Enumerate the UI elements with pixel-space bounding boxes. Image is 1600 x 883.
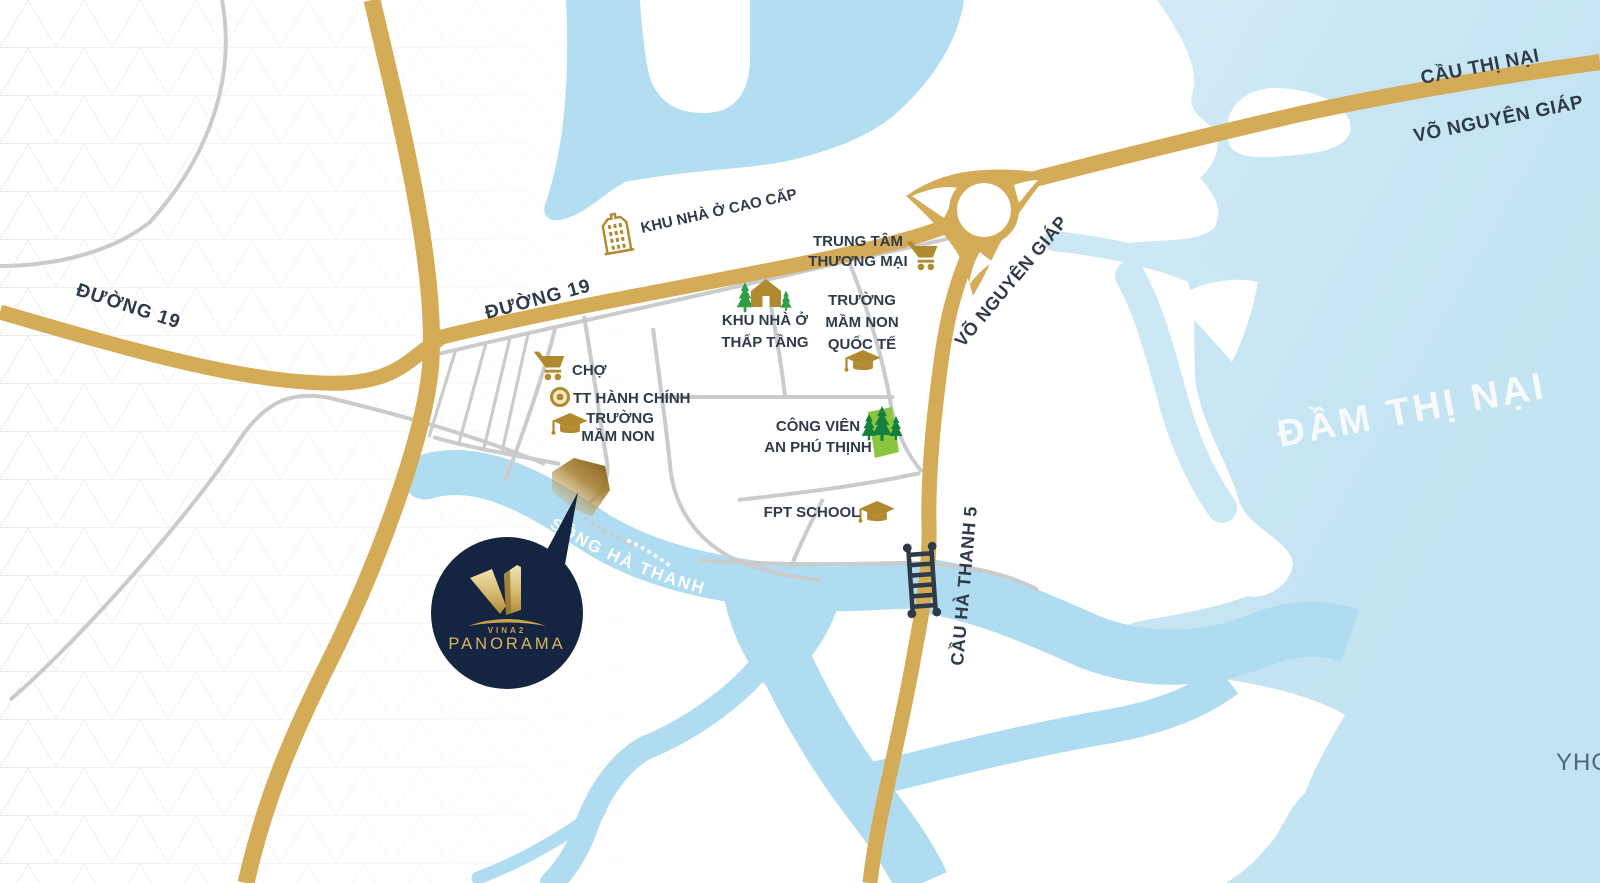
svg-text:CHỢ: CHỢ bbox=[572, 362, 607, 379]
svg-text:TRUNG TÂM: TRUNG TÂM bbox=[813, 232, 903, 250]
svg-text:THẤP TẦNG: THẤP TẦNG bbox=[721, 334, 808, 351]
svg-text:THƯƠNG MẠI: THƯƠNG MẠI bbox=[808, 253, 907, 270]
svg-text:PANORAMA: PANORAMA bbox=[448, 635, 565, 653]
svg-text:VINA2: VINA2 bbox=[488, 626, 527, 635]
svg-text:KHU NHÀ Ở: KHU NHÀ Ở bbox=[722, 311, 808, 329]
svg-text:YHO: YHO bbox=[1556, 749, 1600, 776]
svg-text:TT HÀNH CHÍNH: TT HÀNH CHÍNH bbox=[573, 390, 691, 407]
svg-text:FPT SCHOOL: FPT SCHOOL bbox=[764, 504, 861, 521]
svg-text:MẦM NON: MẦM NON bbox=[581, 428, 654, 445]
svg-text:CÔNG VIÊN: CÔNG VIÊN bbox=[776, 417, 860, 435]
svg-text:TRƯỜNG: TRƯỜNG bbox=[586, 409, 654, 427]
svg-text:AN PHÚ THỊNH: AN PHÚ THỊNH bbox=[764, 438, 872, 456]
svg-text:TRƯỜNG: TRƯỜNG bbox=[828, 291, 896, 309]
svg-text:MẦM NON: MẦM NON bbox=[825, 314, 898, 331]
svg-text:QUỐC TẾ: QUỐC TẾ bbox=[828, 335, 896, 353]
